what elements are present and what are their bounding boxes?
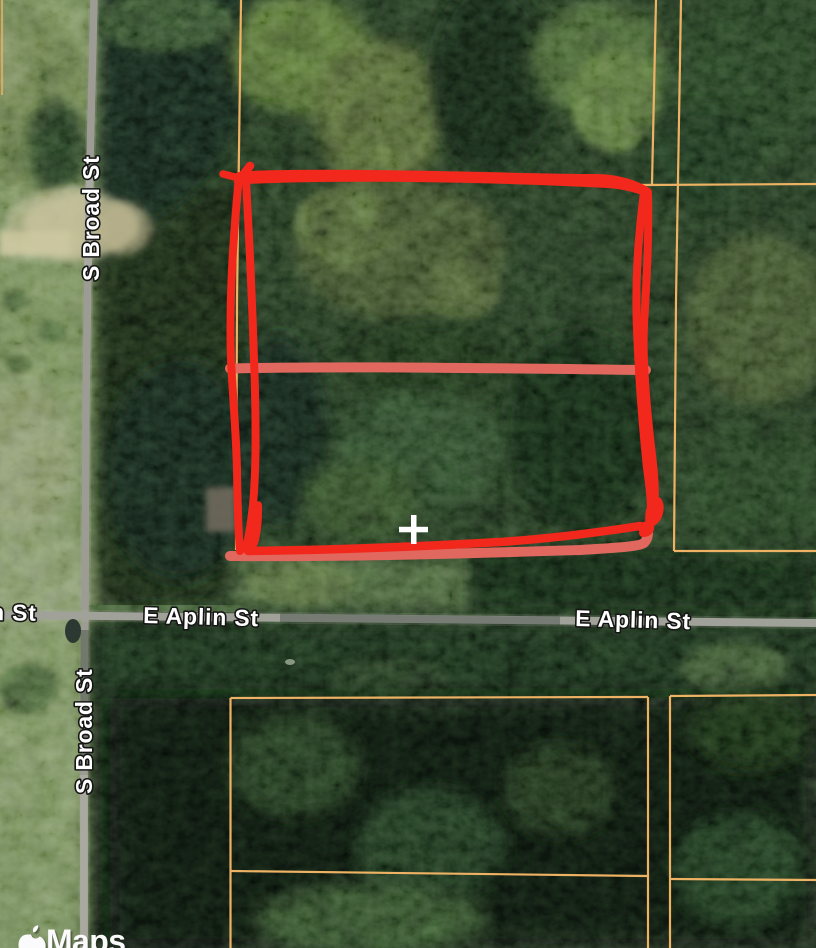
svg-text:E Aplin St: E Aplin St bbox=[143, 602, 259, 631]
svg-text:Maps: Maps bbox=[46, 923, 125, 948]
svg-text:E Aplin St: E Aplin St bbox=[575, 605, 691, 634]
svg-text:S Broad St: S Broad St bbox=[71, 668, 97, 794]
svg-text:n St: n St bbox=[0, 599, 37, 626]
svg-text:S Broad St: S Broad St bbox=[78, 155, 104, 281]
